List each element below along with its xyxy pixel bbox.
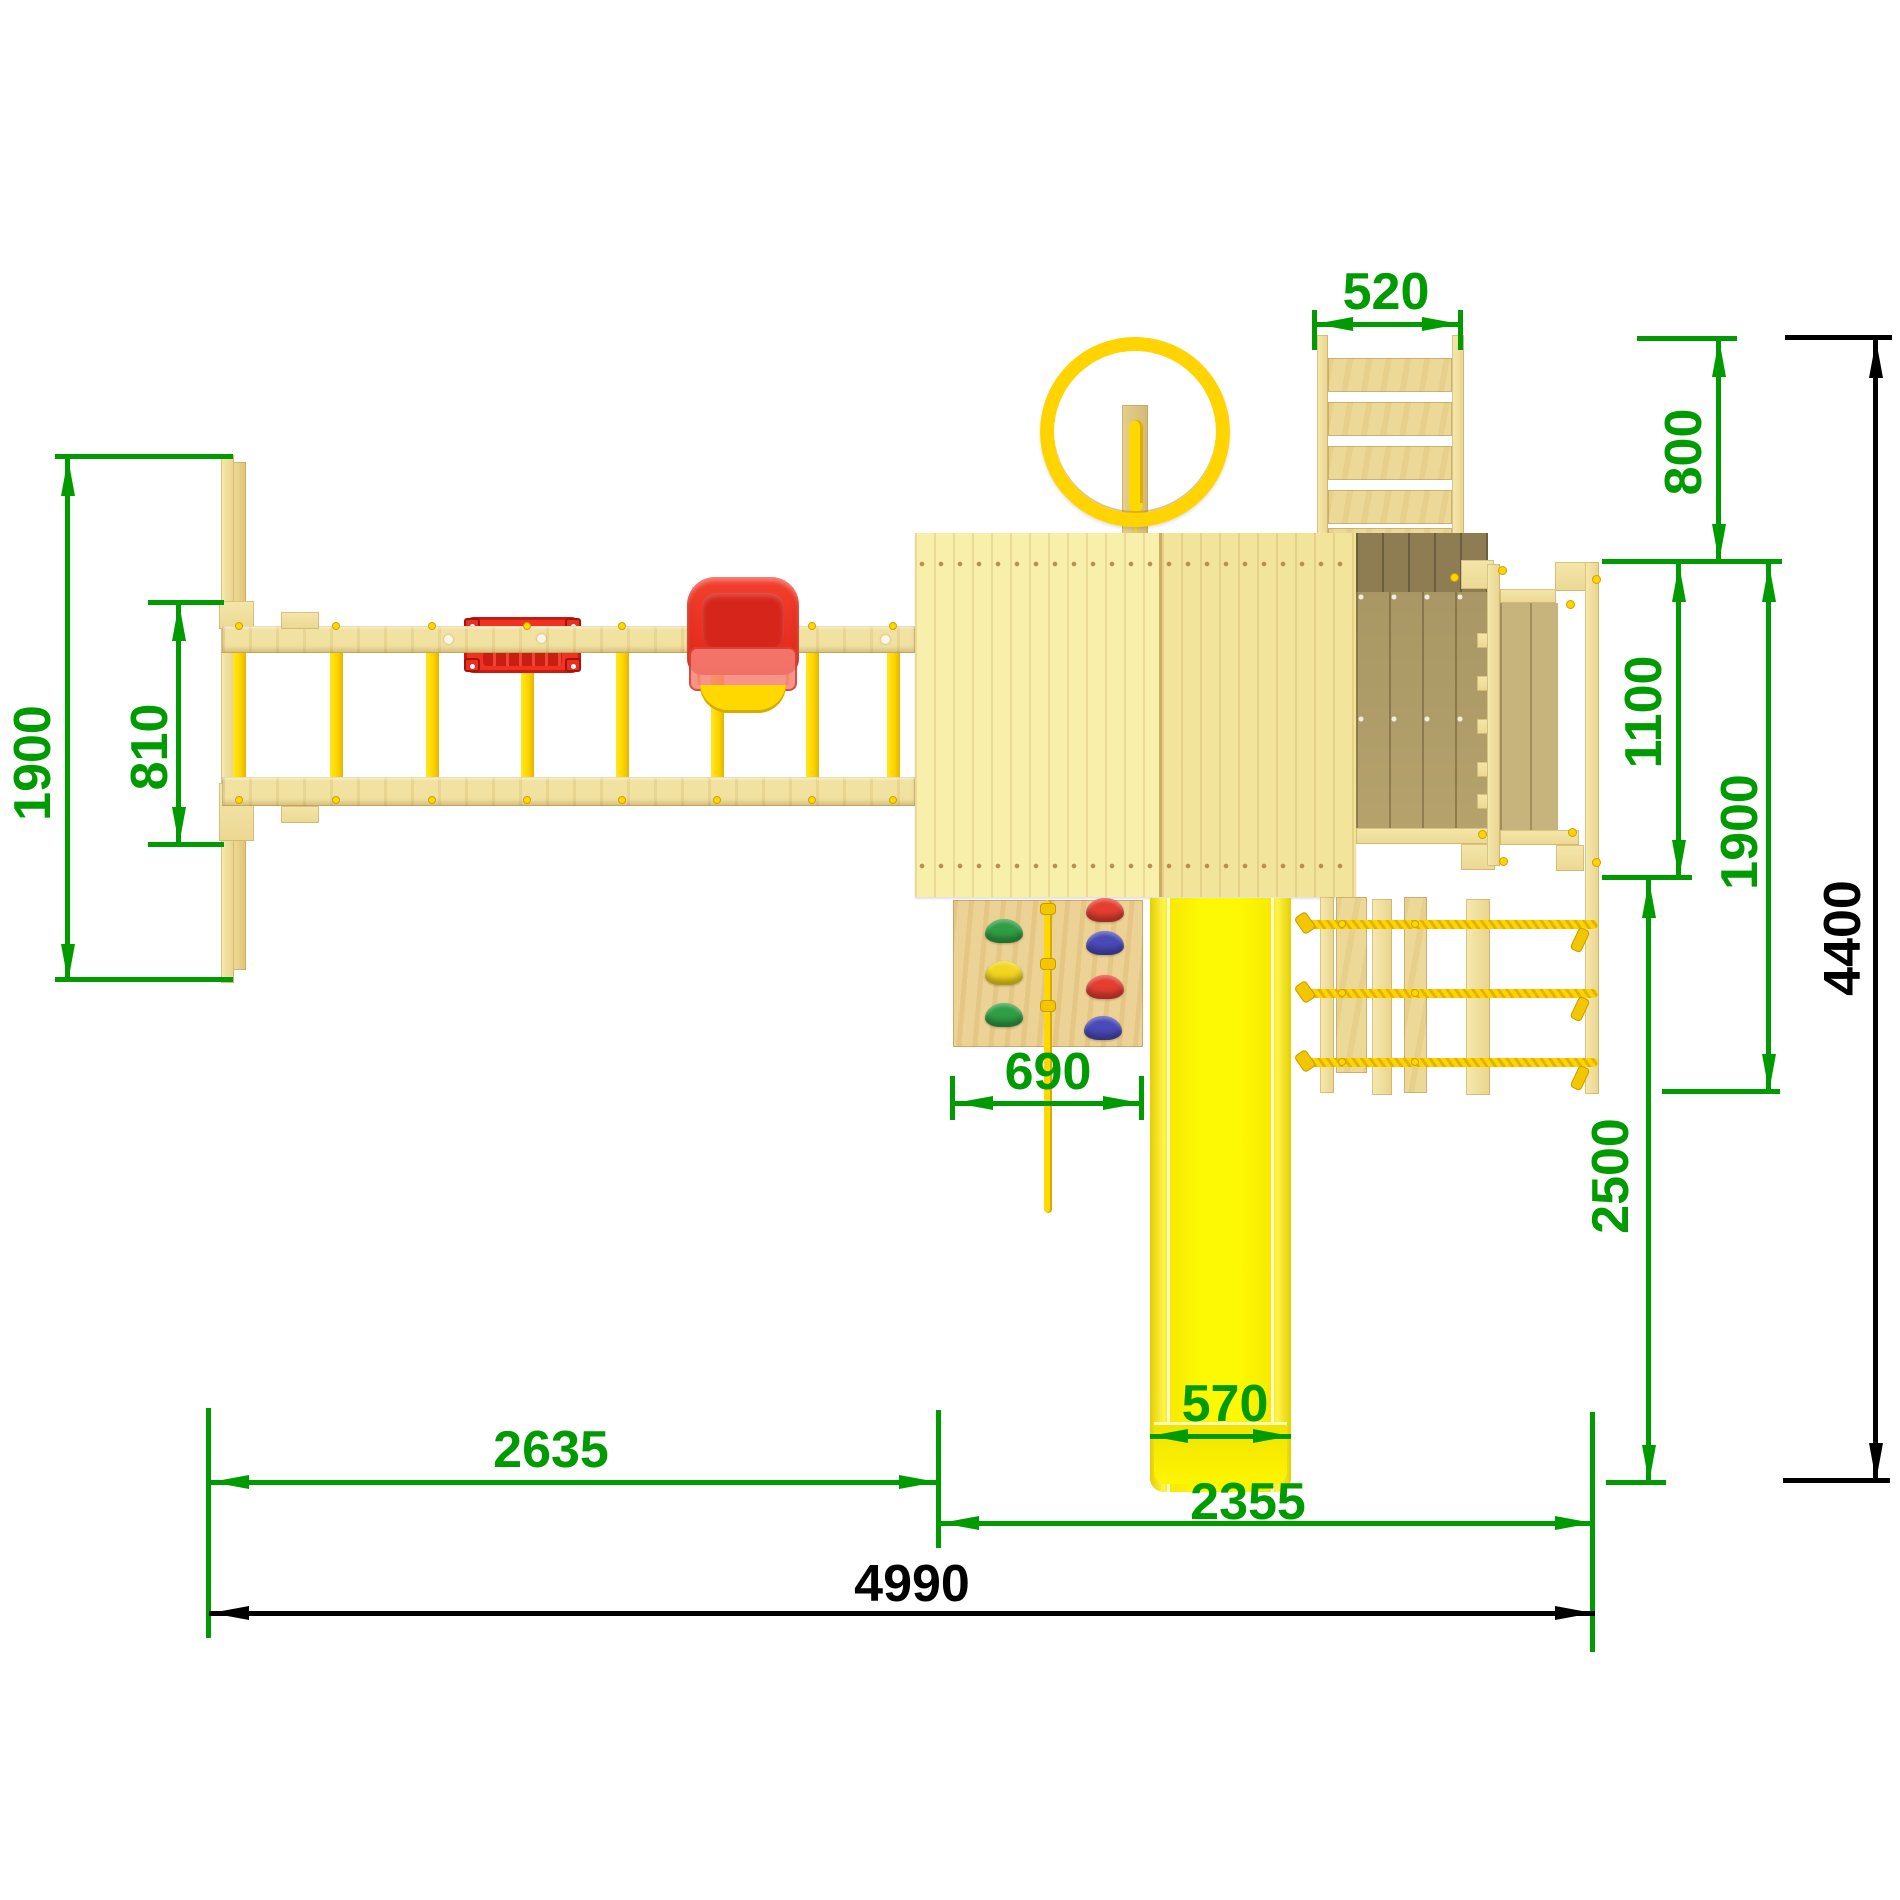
- dim-label-slide-side: 2500: [1585, 1118, 1637, 1234]
- dim-tick: [1637, 336, 1737, 341]
- deck-bottom-rail: [1356, 828, 1488, 844]
- dim-arrow: [1712, 339, 1726, 377]
- dim-tick: [1785, 335, 1892, 340]
- dim-arrow: [61, 458, 75, 496]
- dim-arrow: [172, 603, 186, 641]
- climbing-hold-yellow: [985, 961, 1023, 985]
- dim-arrow: [1642, 880, 1656, 918]
- beam-hole: [881, 635, 890, 644]
- climbing-hold-blue: [1086, 931, 1124, 955]
- steering-wheel-ring: [1040, 337, 1230, 527]
- railing-bottom-post: [1556, 845, 1584, 871]
- dim-tick: [950, 1076, 955, 1120]
- access-ladder-rail: [1317, 335, 1328, 560]
- dim-arrow: [1869, 1443, 1883, 1481]
- railing-top-rail: [1500, 589, 1556, 603]
- bolt: [889, 796, 897, 804]
- rope-knot: [1294, 980, 1317, 1004]
- platform-deck: [1356, 592, 1488, 833]
- dim-label-overall-length: 4990: [854, 1558, 970, 1610]
- rope-knot: [1294, 911, 1317, 935]
- swing-frame-rung: [233, 648, 246, 780]
- bolt: [332, 796, 340, 804]
- rail-tab: [1477, 719, 1488, 734]
- dim-tick: [1662, 1089, 1780, 1094]
- seat-tab: [464, 658, 480, 672]
- rail-tab: [1477, 676, 1488, 691]
- dim-tick: [1139, 1076, 1144, 1120]
- beam-bracket: [281, 806, 319, 823]
- dim-label-slide-width: 570: [1182, 1378, 1269, 1430]
- slide-highlight: [1167, 898, 1170, 1492]
- rail-tab: [1477, 762, 1488, 777]
- bolt: [523, 796, 531, 804]
- bolt: [1338, 1058, 1346, 1066]
- dim-arrow: [1672, 840, 1686, 878]
- roof-nail-row: [919, 561, 1352, 567]
- swing-frame-rung: [426, 648, 439, 780]
- dim-arrow: [1869, 340, 1883, 378]
- bolt: [428, 622, 436, 630]
- dim-label-ladder-width: 520: [1343, 266, 1430, 318]
- bolt: [889, 622, 897, 630]
- beam-hole: [537, 634, 546, 643]
- swing-beam-front: [222, 626, 915, 653]
- dim-tick: [148, 842, 224, 847]
- climbing-hold-blue: [1084, 1016, 1122, 1040]
- dim-arrow: [1762, 1054, 1776, 1092]
- beam-hole: [444, 635, 453, 644]
- dim-tick: [55, 977, 233, 982]
- dim-line: [1646, 878, 1651, 1483]
- beam-bracket: [281, 612, 319, 629]
- bolt: [1338, 989, 1346, 997]
- dim-line: [1676, 562, 1681, 878]
- bolt: [235, 622, 243, 630]
- dim-label-tower-length: 2355: [1190, 1476, 1306, 1528]
- rope-knot: [1294, 1049, 1317, 1073]
- dim-label-swing-length: 2635: [493, 1424, 609, 1476]
- dim-label-platform-depth: 1100: [1618, 656, 1670, 769]
- climbing-hold-green: [985, 919, 1023, 943]
- swing-frame-rung: [616, 648, 629, 780]
- ladder-rung: [1328, 490, 1452, 524]
- baby-swing-bumper: [700, 685, 786, 713]
- dim-arrow: [1642, 1445, 1656, 1483]
- ladder-rung: [1328, 402, 1452, 436]
- dim-tick: [1606, 1480, 1666, 1485]
- dim-tick: [206, 1408, 211, 1638]
- railing-side-post: [1585, 562, 1599, 1094]
- bridge-rope: [1306, 989, 1598, 998]
- climbing-hold-red: [1086, 898, 1124, 922]
- slide-rail-right: [1271, 898, 1291, 1492]
- dim-arrow: [941, 1516, 979, 1530]
- dim-arrow: [211, 1475, 249, 1489]
- dim-tick: [1312, 310, 1317, 350]
- dim-line: [209, 1480, 939, 1485]
- climbing-hold-red: [1086, 975, 1124, 999]
- dim-tick: [55, 454, 233, 459]
- dim-arrow: [1712, 524, 1726, 562]
- dim-arrow: [172, 807, 186, 845]
- roof-nail-row: [919, 863, 1352, 869]
- bolt: [618, 796, 626, 804]
- railing-top-post: [1555, 562, 1586, 591]
- bridge-rope: [1306, 920, 1598, 929]
- tower-roof: [915, 533, 1356, 897]
- swing-frame-rung: [887, 648, 900, 780]
- dim-tick: [148, 600, 224, 605]
- dim-arrow: [1103, 1096, 1141, 1110]
- dim-tick: [1458, 310, 1463, 350]
- climbing-hold-green: [985, 1003, 1023, 1027]
- bolt: [618, 622, 626, 630]
- rail-tab: [1477, 794, 1488, 809]
- dim-label-swing-depth: 1900: [7, 705, 59, 821]
- dim-arrow: [1555, 1606, 1593, 1620]
- bolt: [1592, 858, 1601, 867]
- ladder-rung: [1328, 358, 1452, 392]
- dim-line: [1873, 338, 1878, 1483]
- bolt: [1568, 828, 1577, 837]
- bolt: [1411, 989, 1419, 997]
- bolt: [1478, 830, 1487, 839]
- baby-swing-back: [702, 593, 784, 649]
- roof-panel-right: [1162, 533, 1356, 897]
- bolt: [1411, 920, 1419, 928]
- ladder-rung: [1328, 446, 1452, 480]
- bolt: [1498, 566, 1507, 575]
- dim-arrow: [211, 1606, 249, 1620]
- dim-tick: [936, 1410, 941, 1548]
- dim-arrow: [899, 1475, 937, 1489]
- bolt: [1592, 575, 1601, 584]
- climbing-rope-knot: [1040, 1000, 1056, 1012]
- dim-label-ladder-run: 800: [1658, 409, 1710, 496]
- dim-tick: [1602, 559, 1782, 564]
- dim-arrow: [955, 1096, 993, 1110]
- climbing-rope-knot: [1040, 958, 1056, 970]
- playground-plan-drawing: 1900 810 520 800 1100 1900: [0, 0, 1900, 1900]
- dim-label-right-depth: 1900: [1714, 774, 1766, 890]
- bolt: [428, 796, 436, 804]
- bolt: [235, 796, 243, 804]
- bolt: [808, 796, 816, 804]
- swing-frame-rung: [806, 648, 819, 780]
- bolt: [1499, 857, 1508, 866]
- climbing-rope-knot: [1040, 903, 1056, 915]
- bolt: [523, 622, 531, 630]
- deck-side-rail: [1487, 564, 1500, 866]
- bolt: [332, 622, 340, 630]
- roof-ridge: [1159, 533, 1162, 897]
- seat-tab: [565, 658, 581, 672]
- bolt: [1450, 573, 1459, 582]
- dim-label-swing-bay: 810: [124, 704, 176, 791]
- roof-panel-left: [915, 533, 1162, 897]
- rail-tab: [1477, 633, 1488, 648]
- bolt: [1411, 1058, 1419, 1066]
- dim-label-wall-width: 690: [1005, 1046, 1092, 1098]
- swing-frame-rung: [330, 648, 343, 780]
- bolt: [1338, 920, 1346, 928]
- dim-tick: [1783, 1478, 1890, 1483]
- bridge-rope: [1306, 1058, 1598, 1067]
- bolt: [1566, 600, 1575, 609]
- slide-highlight: [1271, 898, 1274, 1492]
- deck-screws: [1358, 594, 1486, 600]
- dim-arrow: [1555, 1516, 1593, 1530]
- dim-arrow: [1672, 564, 1686, 602]
- dim-arrow: [1762, 564, 1776, 602]
- baby-swing-seat: [687, 577, 799, 715]
- deck-screws: [1358, 716, 1486, 722]
- dim-line: [65, 458, 70, 980]
- second-deck: [1500, 603, 1558, 832]
- bolt: [808, 622, 816, 630]
- dim-label-overall-depth: 4400: [1817, 880, 1869, 996]
- bolt: [713, 796, 721, 804]
